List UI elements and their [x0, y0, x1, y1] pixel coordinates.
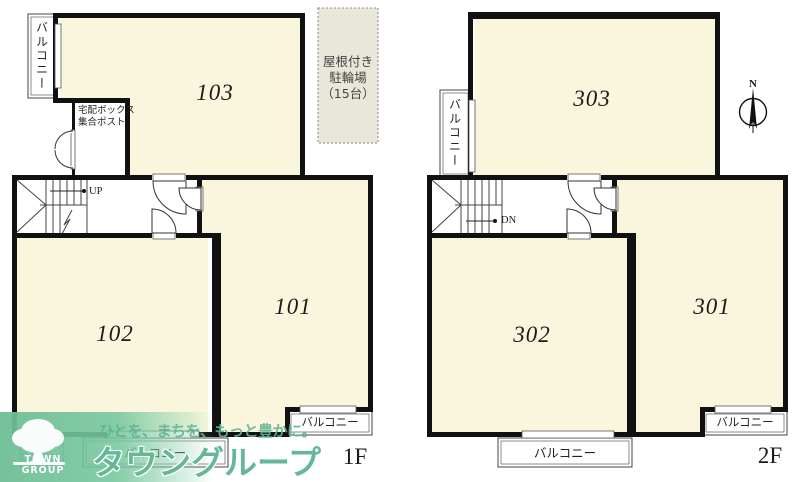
room-302-label: 302: [513, 322, 551, 348]
balcony-left-1f-label: バルコニー: [34, 21, 51, 91]
stairs-1f: [17, 180, 87, 234]
floorplan-image: 103 101 102 303 301 302 1F 2F バルコニー バルコニ…: [0, 0, 800, 482]
balcony-left-2f-label: バルコニー: [447, 98, 464, 168]
watermark-logo-caption: TOWN GROUP: [2, 454, 84, 476]
bike-parking-line2: 駐輪場: [321, 70, 374, 86]
room-103-label: 103: [196, 80, 234, 106]
compass-north-label: N: [749, 78, 757, 90]
room-103-area: [60, 18, 300, 177]
balcony-bottom-2f-label: バルコニー: [534, 443, 596, 462]
delivery-box-line1: 宅配ボックス: [78, 105, 135, 117]
floor-2-label: 2F: [758, 443, 782, 469]
stairs-down-label: DN: [501, 215, 516, 226]
stairs-up-label: UP: [89, 186, 102, 197]
room-101-label: 101: [274, 294, 312, 320]
bike-parking-label: 屋根付き 駐輪場 （15台）: [321, 54, 374, 102]
stairs-2f: [432, 180, 502, 233]
room-301-label: 301: [693, 294, 731, 320]
room-fills: [17, 18, 783, 432]
watermark-brand-text: タウングループ: [92, 436, 321, 482]
floor-1-label: 1F: [343, 444, 367, 470]
entrance-double-door: [55, 150, 73, 168]
entrance-double-door: [55, 131, 73, 149]
balcony-right-2f-label: バルコニー: [716, 414, 773, 430]
room-102-label: 102: [96, 321, 134, 347]
bike-parking-line3: （15台）: [321, 86, 374, 102]
room-303-label: 303: [573, 86, 611, 112]
bike-parking-line1: 屋根付き: [321, 54, 374, 70]
floorplan-drawing: [0, 0, 800, 482]
compass-icon: [740, 88, 767, 133]
delivery-box-label: 宅配ボックス 集合ポスト: [78, 105, 135, 128]
delivery-box-line2: 集合ポスト: [78, 117, 135, 129]
